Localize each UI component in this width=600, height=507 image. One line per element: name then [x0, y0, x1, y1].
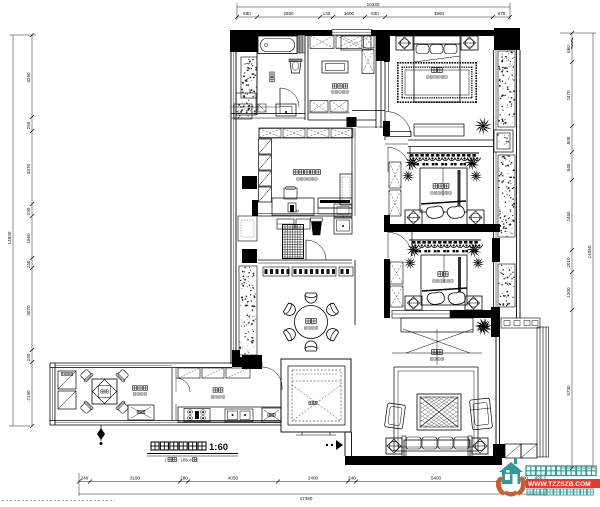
svg-text:2650: 2650 — [283, 11, 294, 16]
svg-text:140: 140 — [323, 11, 331, 16]
svg-text:2450: 2450 — [566, 211, 571, 222]
svg-text:5730: 5730 — [566, 385, 571, 396]
svg-text:17390: 17390 — [300, 496, 313, 501]
svg-text:14050: 14050 — [587, 245, 592, 258]
svg-text:: 186.4: : 186.4 — [178, 458, 192, 463]
svg-text:1600: 1600 — [344, 11, 355, 16]
svg-text:800: 800 — [566, 136, 571, 144]
svg-text:4050: 4050 — [228, 476, 239, 481]
svg-text:14830: 14830 — [7, 231, 12, 244]
svg-text:670: 670 — [498, 11, 506, 16]
svg-text:1:60: 1:60 — [209, 442, 228, 453]
svg-text:230: 230 — [26, 207, 31, 215]
svg-text:3370: 3370 — [26, 163, 31, 174]
svg-text:1300: 1300 — [566, 287, 571, 298]
svg-text:5400: 5400 — [431, 476, 442, 481]
svg-text:240: 240 — [348, 476, 356, 481]
svg-text:3070: 3070 — [26, 305, 31, 316]
svg-text:680: 680 — [243, 11, 251, 16]
svg-text:240: 240 — [26, 353, 31, 361]
svg-text:840: 840 — [566, 163, 571, 171]
svg-text:2400: 2400 — [308, 476, 319, 481]
svg-text:2010: 2010 — [566, 257, 571, 268]
svg-text:250: 250 — [26, 121, 31, 129]
svg-text:630: 630 — [371, 11, 379, 16]
svg-text:10330: 10330 — [367, 2, 380, 7]
svg-text:3960: 3960 — [434, 11, 445, 16]
svg-text:3190: 3190 — [130, 476, 141, 481]
svg-text:WWW.TZZSZB.COM: WWW.TZZSZB.COM — [528, 481, 591, 488]
svg-text:660: 660 — [566, 45, 571, 53]
svg-text:2130: 2130 — [26, 390, 31, 401]
svg-text:240: 240 — [26, 260, 31, 268]
svg-text:280: 280 — [180, 476, 188, 481]
svg-text:3250: 3250 — [26, 72, 31, 83]
svg-text:240: 240 — [81, 476, 89, 481]
svg-text:2470: 2470 — [566, 90, 571, 101]
svg-text:1550: 1550 — [26, 233, 31, 244]
